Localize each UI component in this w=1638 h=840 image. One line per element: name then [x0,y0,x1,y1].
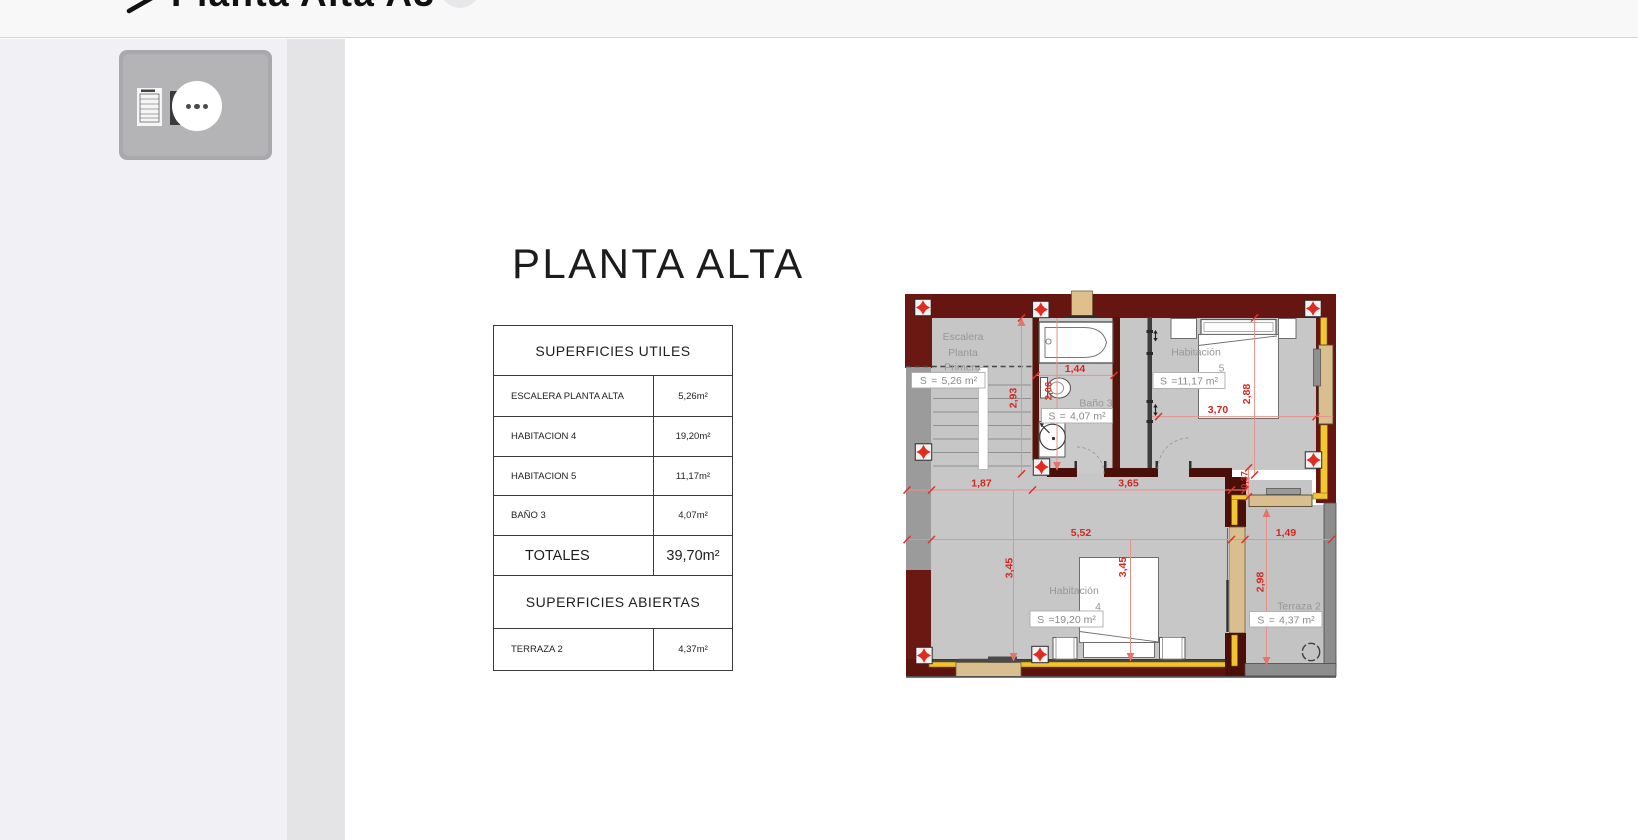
svg-text:Primera: Primera [944,362,981,374]
svg-text:3,45: 3,45 [1004,558,1016,579]
svg-text:1,49: 1,49 [1276,527,1297,539]
svg-text:Habitación: Habitación [1049,585,1099,597]
svg-text:0,37: 0,37 [1240,471,1250,489]
svg-text:Planta: Planta [948,347,978,359]
svg-text:S =19,20 m²: S =19,20 m² [1037,614,1096,626]
svg-text:Habitación: Habitación [1171,347,1221,359]
svg-text:2,93: 2,93 [1008,388,1020,409]
svg-text:2,98: 2,98 [1254,572,1266,593]
svg-text:3,65: 3,65 [1118,478,1139,490]
svg-text:3,45: 3,45 [1117,557,1129,578]
svg-text:1,44: 1,44 [1065,363,1086,375]
svg-text:S = 4,07 m²: S = 4,07 m² [1048,411,1106,423]
svg-text:3,70: 3,70 [1208,404,1229,416]
svg-text:S = 5,26 m²: S = 5,26 m² [920,375,978,387]
svg-text:2,06: 2,06 [1044,382,1055,401]
svg-text:2,88: 2,88 [1241,384,1253,405]
svg-text:Terraza 2: Terraza 2 [1277,601,1321,613]
svg-text:S = 4,37 m²: S = 4,37 m² [1257,615,1315,627]
svg-text:Baño 3: Baño 3 [1079,398,1112,410]
svg-text:1,87: 1,87 [971,478,992,490]
svg-text:Escalera: Escalera [943,331,984,343]
svg-text:5,52: 5,52 [1071,527,1092,539]
svg-text:S =11,17 m²: S =11,17 m² [1160,376,1218,388]
